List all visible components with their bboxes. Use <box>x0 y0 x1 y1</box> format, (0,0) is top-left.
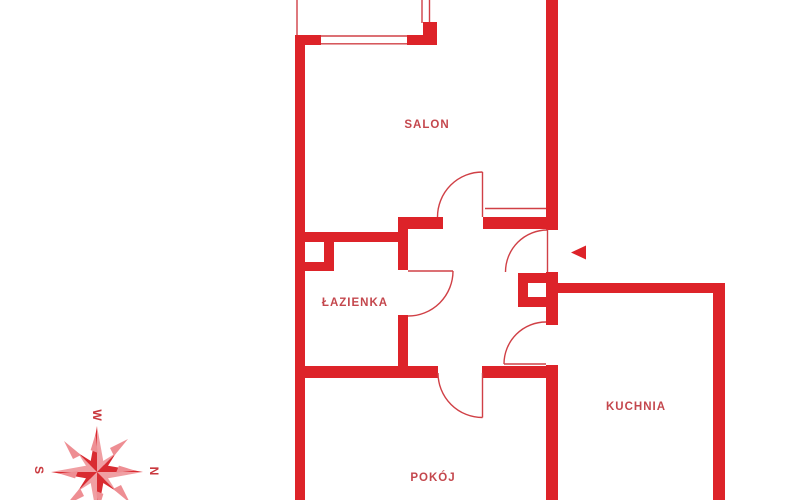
door-arc-salon <box>438 172 483 217</box>
duct-wall <box>304 262 334 271</box>
wall-segment <box>546 0 558 230</box>
wall-segment <box>295 232 407 242</box>
floor-plan-drawing: W S N <box>0 0 790 500</box>
balcony-outline <box>297 0 430 36</box>
floor-plan: W S N SALON ŁAZIENKA KUCHNIA POKÓJ <box>0 0 790 500</box>
compass-main-points <box>51 426 143 500</box>
wall-segment <box>295 35 321 45</box>
door-arc-bathroom <box>408 271 453 316</box>
wall-segment <box>295 366 438 378</box>
walls <box>295 0 725 500</box>
duct-wall <box>324 242 334 264</box>
entrance-arrow-icon <box>571 246 586 260</box>
duct-wall <box>518 297 558 307</box>
wall-segment <box>546 283 725 293</box>
compass-letter-s: S <box>32 466 46 474</box>
door-arc-entrance <box>506 230 548 272</box>
wall-segment <box>483 217 546 229</box>
wall-segment <box>407 35 437 45</box>
compass-letter-w: W <box>90 409 104 421</box>
door-arc-pokoj <box>438 373 483 418</box>
wall-segment <box>482 366 546 378</box>
room-label-kuchnia: KUCHNIA <box>606 401 666 413</box>
room-label-salon: SALON <box>404 119 449 131</box>
wall-segment <box>713 283 725 500</box>
window <box>321 36 407 44</box>
compass-rose: W S N <box>32 409 161 500</box>
compass-letter-n: N <box>147 467 161 476</box>
wall-segment <box>398 217 408 270</box>
window-glass <box>321 36 407 44</box>
wall-segment <box>546 365 558 500</box>
room-label-lazienka: ŁAZIENKA <box>322 297 388 309</box>
door-arc-kitchen <box>504 322 546 364</box>
room-label-pokoj: POKÓJ <box>410 472 455 484</box>
wall-segment <box>423 22 437 35</box>
wall-segment <box>295 35 305 500</box>
